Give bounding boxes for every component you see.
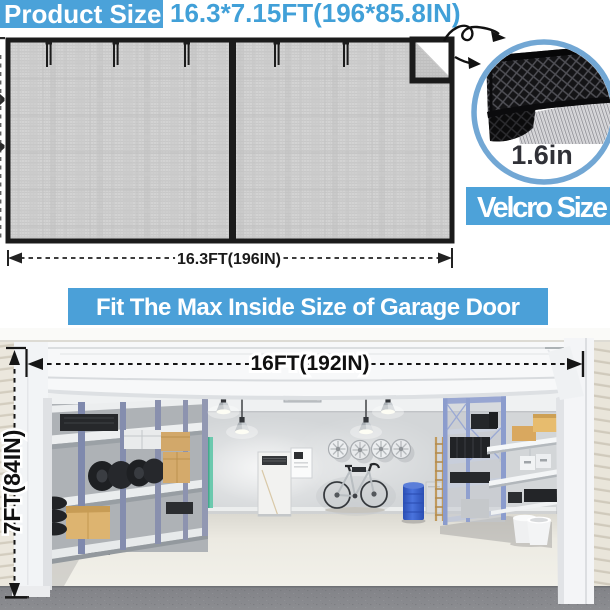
svg-text:1.6in: 1.6in <box>511 140 573 170</box>
svg-text:Velcro Size: Velcro Size <box>477 192 608 224</box>
svg-text:16.3*7.15FT(196*85.8IN): 16.3*7.15FT(196*85.8IN) <box>170 0 461 28</box>
svg-text:16.3FT(196IN): 16.3FT(196IN) <box>177 251 281 268</box>
svg-text:7FT(84IN): 7FT(84IN) <box>0 430 25 535</box>
svg-text:Fit The Max Inside Size of Gar: Fit The Max Inside Size of Garage Door <box>96 294 520 321</box>
svg-text:16FT(192IN): 16FT(192IN) <box>250 352 369 375</box>
svg-text:Product Size: Product Size <box>4 0 161 29</box>
